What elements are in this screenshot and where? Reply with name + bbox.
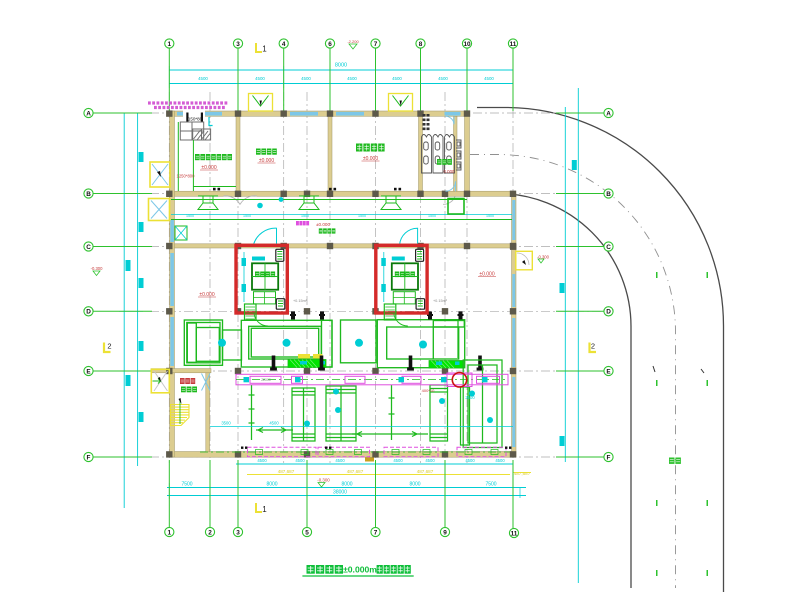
svg-text:4500: 4500 [495,458,505,463]
svg-text:±0.000: ±0.000 [316,222,330,227]
svg-text:400*10: 400*10 [422,388,435,393]
svg-text:4: 4 [282,41,286,48]
svg-text:9: 9 [443,529,447,536]
svg-text:4500: 4500 [438,76,448,81]
svg-text:B: B [86,191,91,198]
svg-text:11: 11 [510,41,517,48]
svg-text:4500: 4500 [198,76,208,81]
svg-text:4500: 4500 [255,76,265,81]
svg-text:C: C [86,244,91,251]
svg-text:B: B [606,191,611,198]
svg-text:-2.200: -2.200 [347,39,359,44]
svg-text:1250*800: 1250*800 [177,174,196,179]
svg-text:2: 2 [591,342,595,351]
svg-text:7: 7 [374,41,378,48]
svg-text:3: 3 [236,529,240,536]
svg-text:10: 10 [463,41,471,48]
svg-text:0.000: 0.000 [444,169,456,174]
svg-text:5: 5 [305,529,309,536]
svg-text:2: 2 [107,342,111,351]
svg-text:7500: 7500 [181,482,192,488]
svg-text:-0.300: -0.300 [91,266,104,271]
svg-text:8000: 8000 [266,482,277,488]
svg-text:D: D [86,309,91,316]
svg-text:D: D [606,309,611,316]
svg-text:-0.300: -0.300 [317,478,330,483]
svg-text:487,687: 487,687 [514,471,531,476]
svg-text:1: 1 [168,41,172,48]
svg-text:487,687: 487,687 [347,469,364,474]
svg-text:150*80: 150*80 [188,117,203,122]
svg-text:8000: 8000 [341,482,352,488]
svg-text:F: F [87,454,91,461]
svg-text:22000: 22000 [261,378,271,382]
svg-text:4500: 4500 [301,76,311,81]
svg-text:8000: 8000 [409,482,420,488]
svg-text:4500: 4500 [465,458,475,463]
svg-text:A: A [86,110,91,117]
svg-text:4500: 4500 [257,458,267,463]
svg-text:3: 3 [236,41,240,48]
svg-text:4500: 4500 [269,421,279,426]
svg-text:2: 2 [208,529,212,536]
svg-text:1500: 1500 [243,214,251,218]
svg-text:7500: 7500 [485,482,496,488]
svg-text:1500: 1500 [301,214,309,218]
svg-text:6: 6 [328,41,332,48]
svg-text:+0.15m²: +0.15m² [293,299,308,303]
svg-text:1500: 1500 [486,214,494,218]
svg-text:C: C [606,244,611,251]
svg-text:3500: 3500 [465,395,475,400]
svg-text:11: 11 [511,530,518,537]
svg-text:8000: 8000 [335,63,347,69]
svg-text:±0.000m: ±0.000m [343,565,377,575]
svg-text:+0.15m²: +0.15m² [433,299,448,303]
svg-text:E: E [86,368,91,375]
svg-text:4500: 4500 [484,76,494,81]
svg-text:4500: 4500 [393,458,403,463]
svg-text:4500: 4500 [392,76,402,81]
svg-text:1500: 1500 [186,214,194,218]
svg-text:487,687: 487,687 [278,469,295,474]
svg-text:4500: 4500 [347,76,357,81]
svg-text:1: 1 [262,505,267,514]
svg-text:1500: 1500 [358,214,366,218]
svg-text:1: 1 [168,529,172,536]
svg-text:3500: 3500 [221,421,231,426]
svg-text:4500: 4500 [335,458,345,463]
svg-text:38000: 38000 [333,490,347,496]
svg-text:4500: 4500 [295,458,305,463]
svg-text:7: 7 [374,529,378,536]
svg-text:1500: 1500 [428,214,436,218]
svg-text:8: 8 [419,41,423,48]
svg-text:E: E [606,368,611,375]
svg-text:F: F [607,454,611,461]
svg-text:A: A [606,110,611,117]
svg-text:487,687: 487,687 [417,469,434,474]
svg-text:1: 1 [262,45,267,54]
svg-text:4500: 4500 [425,458,435,463]
